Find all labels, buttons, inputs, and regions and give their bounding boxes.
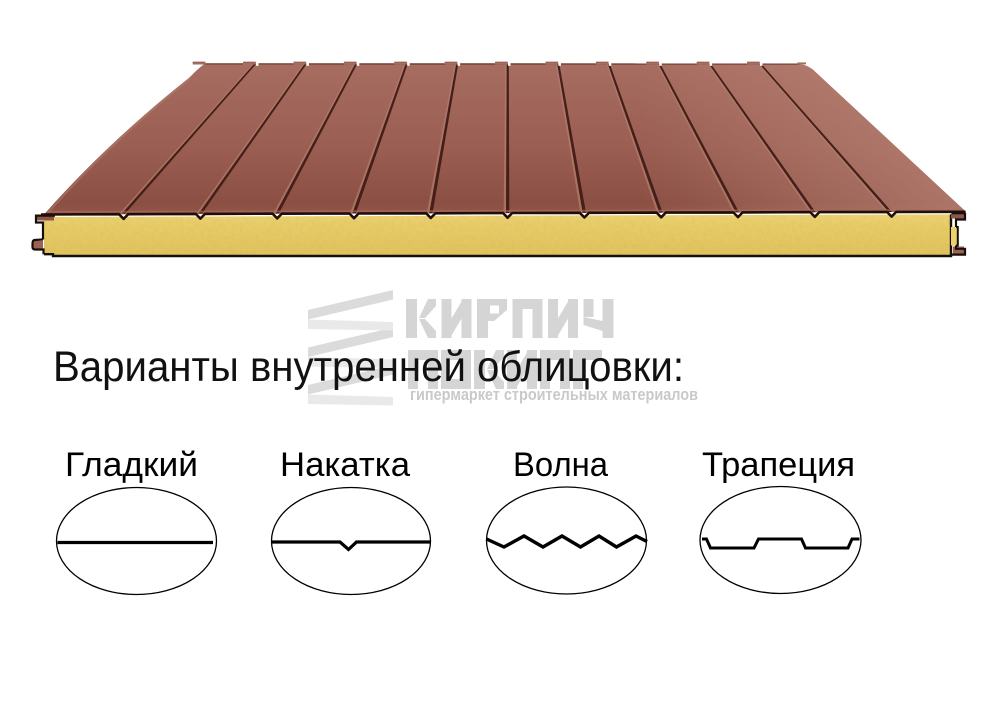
svg-text:Накатка: Накатка <box>280 446 410 484</box>
svg-text:Волна: Волна <box>513 446 608 484</box>
svg-text:Трапеция: Трапеция <box>702 446 855 484</box>
svg-text:Варианты внутренней облицовки:: Варианты внутренней облицовки: <box>53 343 684 391</box>
svg-text:Гладкий: Гладкий <box>65 446 198 484</box>
